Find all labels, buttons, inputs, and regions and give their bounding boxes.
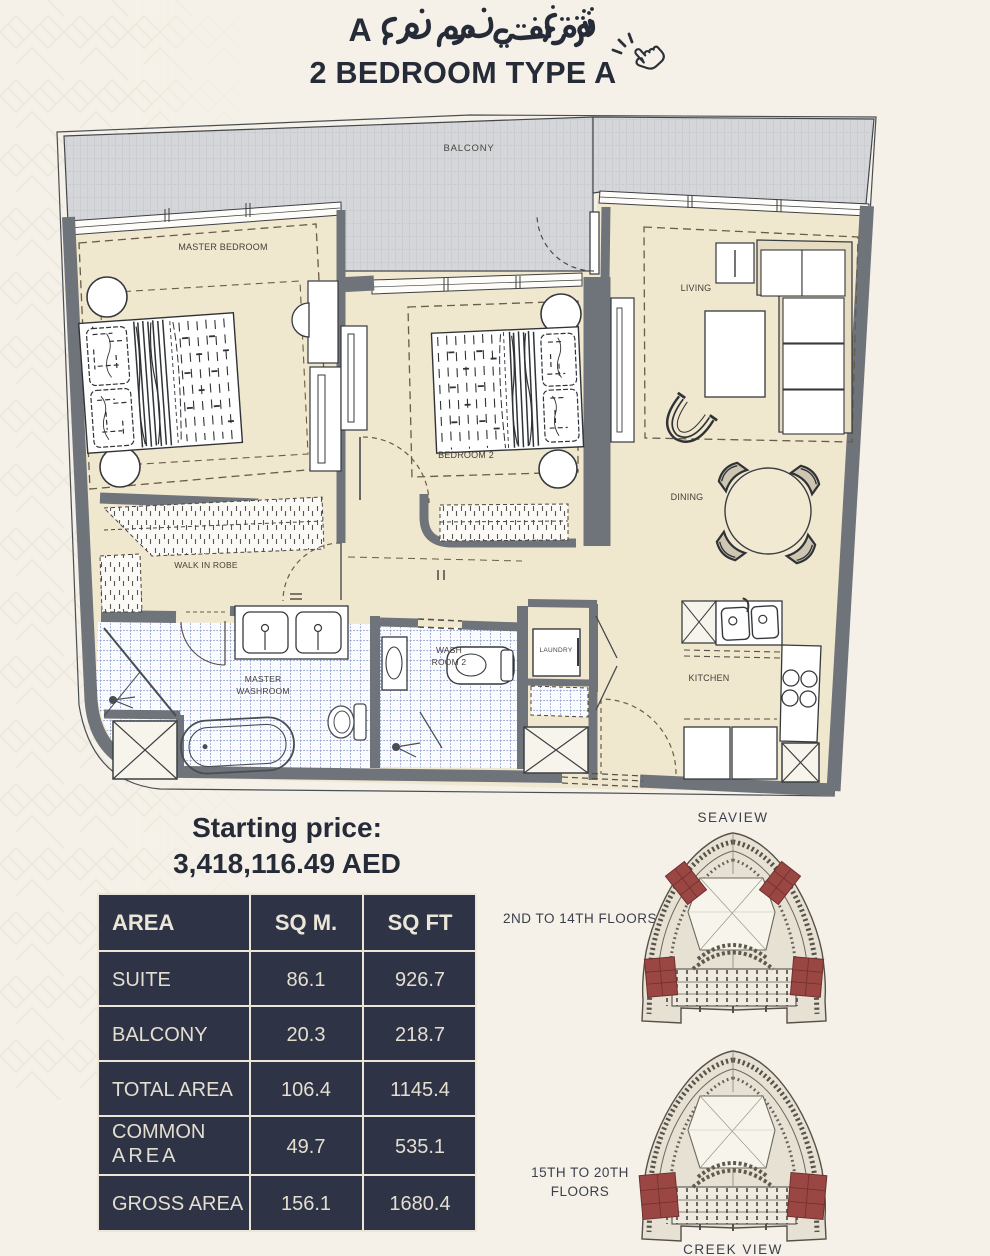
svg-text:COMMON: COMMON xyxy=(112,1121,205,1143)
svg-text:926.7: 926.7 xyxy=(395,969,445,991)
svg-text:A: A xyxy=(348,12,371,48)
svg-text:2 BEDROOM TYPE A: 2 BEDROOM TYPE A xyxy=(309,56,616,90)
svg-text:20.3: 20.3 xyxy=(287,1024,326,1046)
svg-text:MASTER: MASTER xyxy=(245,674,282,684)
svg-text:1680.4: 1680.4 xyxy=(389,1193,450,1215)
svg-text:106.4: 106.4 xyxy=(281,1079,331,1101)
svg-text:BALCONY: BALCONY xyxy=(112,1024,208,1046)
svg-text:535.1: 535.1 xyxy=(395,1136,445,1158)
svg-text:SEAVIEW: SEAVIEW xyxy=(697,810,768,825)
svg-text:ROOM 2: ROOM 2 xyxy=(432,657,467,667)
svg-text:86.1: 86.1 xyxy=(287,969,326,991)
svg-text:CREEK VIEW: CREEK VIEW xyxy=(683,1242,783,1256)
svg-text:TOTAL AREA: TOTAL AREA xyxy=(112,1079,233,1101)
svg-text:SUITE: SUITE xyxy=(112,969,171,991)
svg-text:LAUNDRY: LAUNDRY xyxy=(539,647,572,654)
svg-text:GROSS AREA: GROSS AREA xyxy=(112,1193,244,1215)
svg-text:218.7: 218.7 xyxy=(395,1024,445,1046)
svg-text:BALCONY: BALCONY xyxy=(443,143,494,154)
svg-text:Starting price:: Starting price: xyxy=(192,812,382,843)
svg-text:KITCHEN: KITCHEN xyxy=(689,673,730,683)
svg-text:MASTER BEDROOM: MASTER BEDROOM xyxy=(178,242,267,252)
svg-text:LIVING: LIVING xyxy=(681,283,712,293)
svg-text:WASH: WASH xyxy=(436,645,462,655)
svg-text:3,418,116.49 AED: 3,418,116.49 AED xyxy=(173,848,401,879)
svg-text:WALK IN ROBE: WALK IN ROBE xyxy=(174,560,238,570)
svg-text:156.1: 156.1 xyxy=(281,1193,331,1215)
svg-text:SQ M.: SQ M. xyxy=(275,910,337,935)
svg-text:SQ FT: SQ FT xyxy=(388,910,453,935)
svg-text:AREA: AREA xyxy=(112,910,174,935)
svg-text:FLOORS: FLOORS xyxy=(551,1184,610,1199)
svg-text:1145.4: 1145.4 xyxy=(390,1079,450,1101)
svg-text:WASHROOM: WASHROOM xyxy=(236,686,289,696)
svg-text:49.7: 49.7 xyxy=(287,1136,326,1158)
svg-text:AREA: AREA xyxy=(112,1145,178,1167)
svg-text:2ND TO 14TH FLOORS: 2ND TO 14TH FLOORS xyxy=(503,911,657,926)
svg-text:DINING: DINING xyxy=(671,492,704,502)
svg-text:BEDROOM 2: BEDROOM 2 xyxy=(438,450,494,460)
svg-text:15TH TO 20TH: 15TH TO 20TH xyxy=(531,1165,629,1180)
